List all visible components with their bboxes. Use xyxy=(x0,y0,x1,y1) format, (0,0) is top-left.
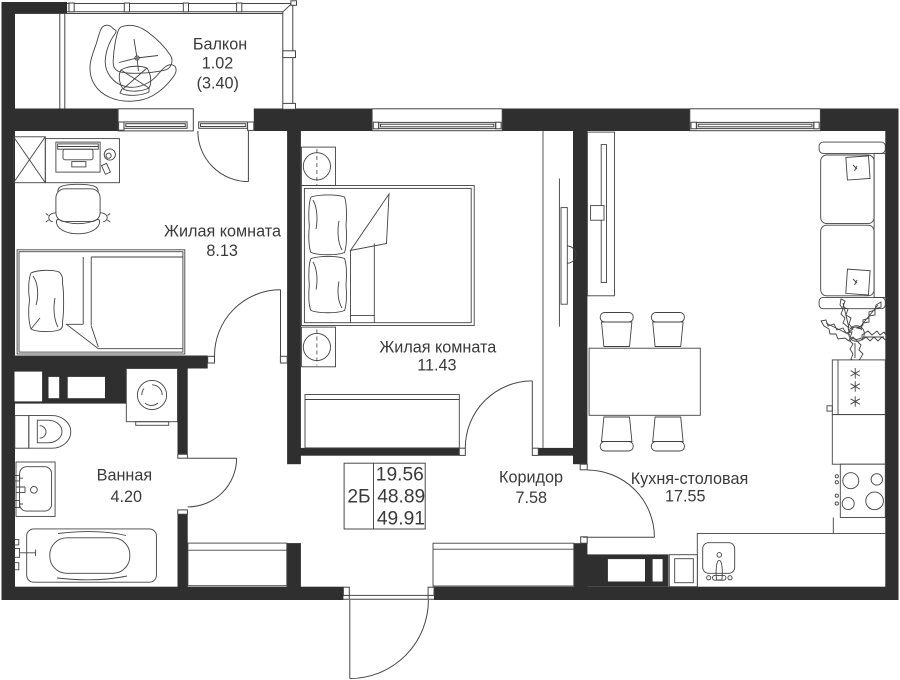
svg-text:Балкон: Балкон xyxy=(193,36,247,54)
svg-text:Жилая комната: Жилая комната xyxy=(164,222,281,240)
svg-text:Кухня-столовая: Кухня-столовая xyxy=(631,470,749,488)
svg-text:19.56: 19.56 xyxy=(376,465,424,486)
svg-text:4.20: 4.20 xyxy=(111,488,143,506)
svg-text:8.13: 8.13 xyxy=(206,242,238,260)
svg-text:11.43: 11.43 xyxy=(417,357,456,375)
svg-text:17.55: 17.55 xyxy=(665,488,706,506)
svg-text:2Б: 2Б xyxy=(347,487,370,508)
svg-text:Ванная: Ванная xyxy=(97,467,152,485)
svg-text:1.02: 1.02 xyxy=(202,54,234,72)
svg-text:(3.40): (3.40) xyxy=(197,75,239,93)
svg-text:48.89: 48.89 xyxy=(377,487,425,508)
svg-text:7.58: 7.58 xyxy=(515,489,547,507)
svg-text:Жилая комната: Жилая комната xyxy=(379,339,496,357)
svg-text:Коридор: Коридор xyxy=(499,468,563,486)
svg-text:49.91: 49.91 xyxy=(377,509,425,530)
